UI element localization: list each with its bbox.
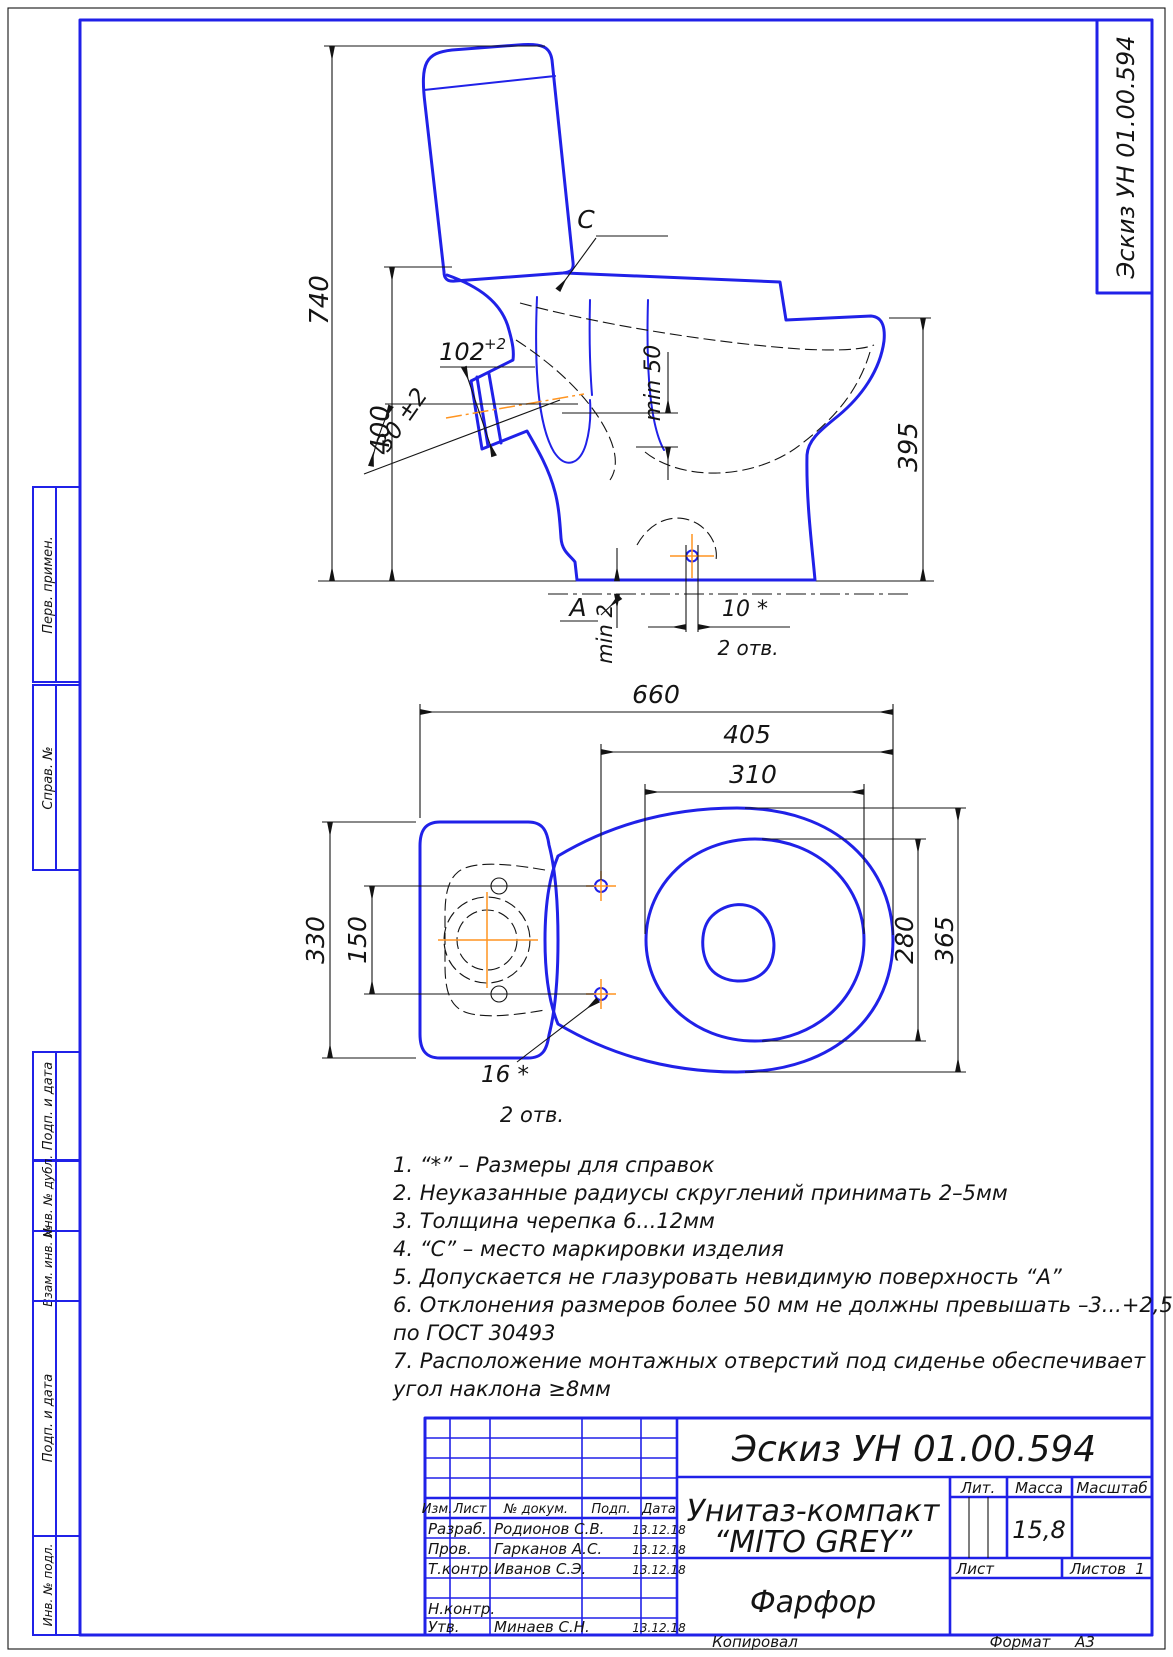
note-line-3: 3. Толщина черепка 6...12мм <box>393 1209 715 1233</box>
header-date: Дата <box>641 1502 676 1517</box>
dim-330: 330 <box>301 916 330 964</box>
mass-value: 15,8 <box>1012 1516 1065 1544</box>
dim-10: 10 * <box>722 597 768 622</box>
row-role: Т.контр. <box>428 1560 493 1578</box>
gost-drawing-svg: Эскиз УН 01.00.594 Перв. примен. Справ. … <box>0 0 1173 1657</box>
dim-660: 660 <box>632 680 680 709</box>
note-line-1: 1. “*” – Размеры для справок <box>393 1153 715 1177</box>
margin-label: Справ. № <box>41 746 56 809</box>
hidden-rim-line <box>520 303 874 350</box>
drawing-sheet: Эскиз УН 01.00.594 Перв. примен. Справ. … <box>0 0 1173 1657</box>
note-line-6: 6. Отклонения размеров более 50 мм не до… <box>393 1293 1173 1317</box>
row-date: 13.12.18 <box>632 1621 686 1635</box>
sheet-frame: Эскиз УН 01.00.594 <box>8 8 1165 1649</box>
margin-label: Перв. примен. <box>41 536 56 634</box>
margin-cell-perv-primen: Перв. примен. <box>33 487 80 682</box>
sheet-label: Лист <box>955 1560 995 1578</box>
c-leader <box>558 238 596 290</box>
dim-310: 310 <box>729 760 777 789</box>
note-line-5: 5. Допускается не глазуровать невидимую … <box>393 1265 1063 1289</box>
bowl-plan-outer <box>545 808 893 1072</box>
side-view: 740 400 395 102 +2 30 ±2 min 50 min 2 10… <box>305 45 934 664</box>
title-block: Эскиз УН 01.00.594 Унитаз-компакт “MITO … <box>422 1418 1152 1636</box>
note-line-2: 2. Неуказанные радиусы скруглений приним… <box>393 1181 1008 1205</box>
header-list: Лист <box>453 1502 487 1517</box>
row-name: Иванов С.Э. <box>494 1560 586 1578</box>
dim-405: 405 <box>723 720 771 749</box>
note-2otv-plan: 2 отв. <box>500 1103 564 1127</box>
format-value: А3 <box>1074 1633 1095 1651</box>
row-date: 13.12.18 <box>632 1523 686 1537</box>
row-name: Родионов С.В. <box>494 1520 604 1538</box>
margin-cell-podp-data-2: Подп. и дата <box>33 1301 80 1536</box>
inner-bowl-edge-1 <box>536 297 590 463</box>
margin-cell-vzam-inv: Взам. инв. № <box>33 1225 80 1306</box>
dim-102-tolerance: +2 <box>484 335 506 353</box>
hidden-front-line <box>645 352 870 473</box>
dim-102: 102 <box>439 338 485 366</box>
copied-label: Копировал <box>712 1633 798 1651</box>
margin-cell-podp-data-1: Подп. и дата <box>33 1052 80 1160</box>
doc-number: Эскиз УН 01.00.594 <box>731 1429 1096 1470</box>
outlet-axis-centerline <box>446 394 584 418</box>
margin-label: Инв. № дубл. <box>41 1155 55 1237</box>
bowl-profile <box>447 273 884 580</box>
material: Фарфор <box>750 1585 876 1620</box>
row-date: 13.12.18 <box>632 1563 686 1577</box>
lit-label: Лит. <box>960 1479 996 1497</box>
note-line-7: 7. Расположение монтажных отверстий под … <box>393 1349 1146 1373</box>
dim-740: 740 <box>305 275 335 325</box>
outer-border <box>8 8 1165 1649</box>
inner-bowl-edge-2 <box>590 300 592 395</box>
margin-cell-inv-dubl: Инв. № дубл. <box>33 1155 80 1237</box>
dim-280: 280 <box>890 916 919 964</box>
leader-16 <box>517 1000 598 1062</box>
hidden-trap-line <box>516 340 615 480</box>
sheets-label: Листов <box>1069 1560 1126 1578</box>
format-label: Формат <box>990 1633 1052 1651</box>
row-role: Разраб. <box>428 1520 487 1538</box>
label-c: C <box>577 205 595 234</box>
dim-365: 365 <box>930 916 959 964</box>
dim-16: 16 * <box>481 1062 529 1088</box>
row-name: Минаев С.Н. <box>494 1618 590 1636</box>
bowl-plan-sump <box>703 905 774 981</box>
header-doc: № докум. <box>503 1502 568 1517</box>
scale-label: Масштаб <box>1076 1479 1147 1497</box>
tank-outline <box>423 45 573 282</box>
sheets-value: 1 <box>1135 1560 1145 1578</box>
row-date: 13.12.18 <box>632 1543 686 1557</box>
row-name: Гарканов А.С. <box>494 1540 602 1558</box>
row-role: Пров. <box>428 1540 472 1558</box>
margin-label: Взам. инв. № <box>41 1225 55 1306</box>
left-margin-cells: Перв. примен. Справ. № Подп. и дата Инв.… <box>33 487 80 1635</box>
tank-lid-seam <box>424 76 555 90</box>
note-2otv-side: 2 отв. <box>717 636 778 660</box>
margin-label: Подп. и дата <box>41 1062 56 1151</box>
header-sign: Подп. <box>591 1502 630 1517</box>
note-line-4: 4. “С” – место маркировки изделия <box>393 1237 784 1261</box>
label-a: A <box>567 593 586 622</box>
dim-395: 395 <box>894 422 924 472</box>
margin-cell-inv-podl: Инв. № подл. <box>33 1536 80 1635</box>
margin-label: Инв. № подл. <box>41 1544 55 1627</box>
technical-notes: 1. “*” – Размеры для справок 2. Неуказан… <box>392 1153 1173 1401</box>
mass-label: Масса <box>1015 1479 1063 1497</box>
margin-label: Подп. и дата <box>41 1374 56 1463</box>
product-name-line1: Унитаз-компакт <box>687 1494 941 1529</box>
margin-cell-sprav-no: Справ. № <box>33 685 80 870</box>
row-role: Утв. <box>428 1618 460 1636</box>
dim-min50: min 50 <box>641 345 666 421</box>
row-role: Н.контр. <box>428 1600 495 1618</box>
header-izm: Изм. <box>422 1502 453 1517</box>
product-name-line2: “MITO GREY” <box>714 1525 913 1560</box>
dim-min2: min 2 <box>593 604 617 664</box>
top-right-doc-number: Эскиз УН 01.00.594 <box>1112 36 1140 280</box>
dim-150: 150 <box>343 916 372 964</box>
plan-view: 660 405 310 330 150 280 365 16 * 2 отв. <box>301 680 966 1127</box>
bowl-plan-inner-rim <box>646 839 864 1041</box>
hidden-outlet-arc <box>637 518 716 560</box>
note-line-6b: по ГОСТ 30493 <box>393 1321 555 1345</box>
note-line-7b: угол наклона ≥8мм <box>392 1377 611 1401</box>
